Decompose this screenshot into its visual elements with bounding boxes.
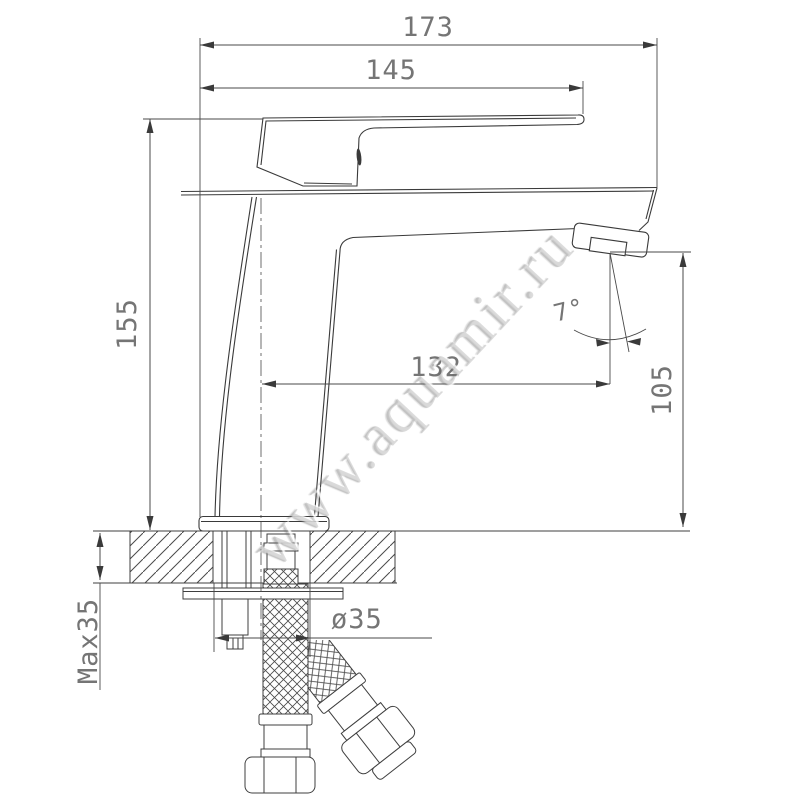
dim-total-height: 155 [112,298,143,350]
dim-overall-length: 173 [402,12,454,43]
dim-max-deck-thickness: Max35 [73,598,104,684]
countertop-hatch-right [310,531,395,583]
countertop-section [93,531,690,588]
faucet-outline [181,115,657,531]
supply-hose-vertical [263,584,308,715]
dim-hole-diameter: ø35 [331,604,383,635]
countertop-hatch-left [130,531,213,583]
dim-handle-length: 145 [365,55,417,86]
dim-outlet-height: 105 [647,364,678,416]
faucet-dimension-drawing: 173 145 155 132 105 7° ø35 Max35 [0,0,800,800]
base-plate [199,517,329,532]
hose-nut-vertical [245,714,315,793]
faucet-handle [257,115,584,186]
mounting-stud [222,599,248,635]
dim-spout-reach: 132 [410,352,462,383]
dim-stream-angle: 7° [551,293,588,328]
technical-drawing-canvas: 173 145 155 132 105 7° ø35 Max35 www.aqu… [0,0,800,800]
mounting-shank [222,531,298,588]
